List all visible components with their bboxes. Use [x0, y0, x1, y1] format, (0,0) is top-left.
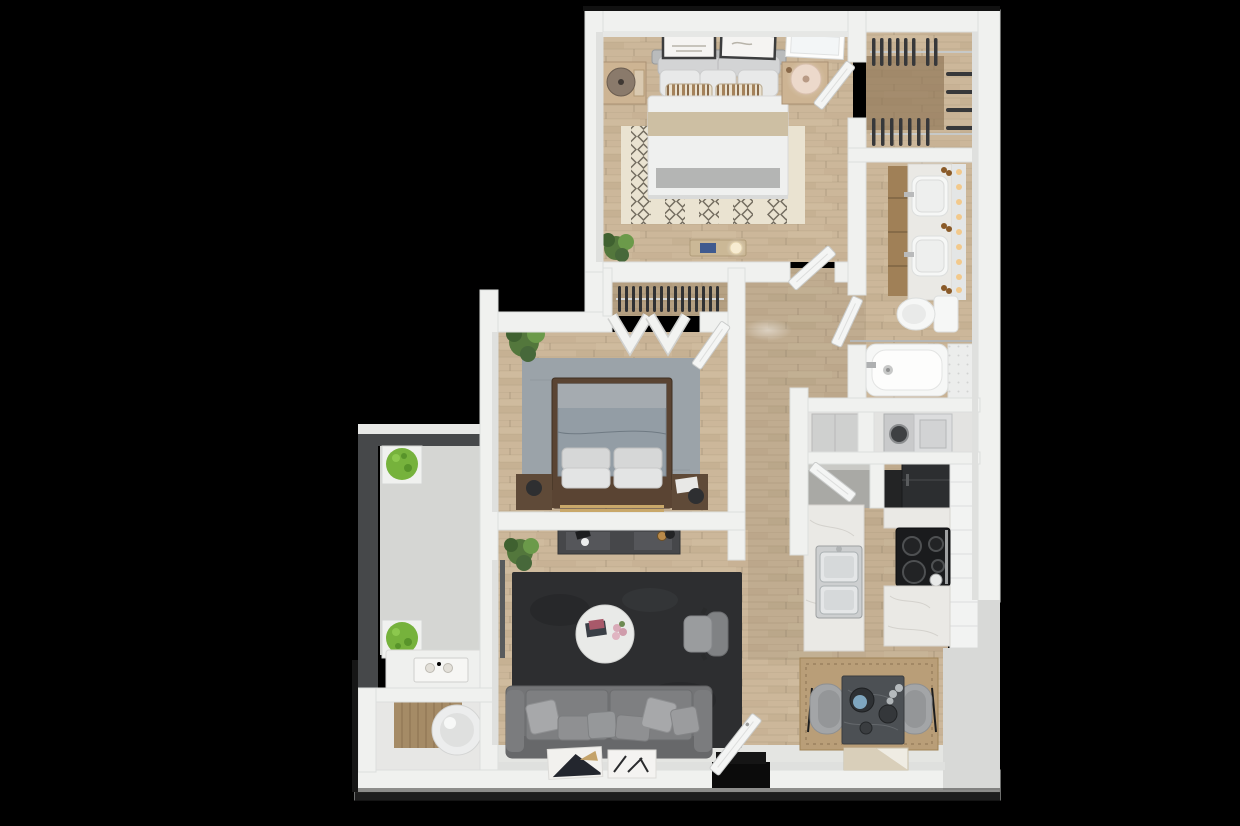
chair-left-seat: [818, 690, 840, 728]
nightstand-left: [600, 62, 646, 104]
hallway: [744, 319, 792, 341]
foot-edge: [648, 195, 788, 199]
refrigerator: [902, 462, 950, 508]
left-edge-shadow: [352, 660, 358, 792]
wall-bedroom2-top-left: [480, 312, 612, 332]
burner-2: [929, 537, 943, 551]
plate-2: [879, 705, 897, 723]
lamp-left-finial: [618, 79, 624, 85]
dryer-door: [920, 420, 946, 448]
bed2-pillow-3: [562, 468, 610, 488]
chair-right-seat: [904, 690, 926, 728]
flower-2: [619, 628, 627, 636]
toilet: [897, 296, 958, 332]
tan-blanket: [648, 112, 788, 136]
kitchen-dark-counter: [884, 470, 902, 508]
throw-pillow-6: [670, 706, 700, 736]
media-console: [558, 528, 680, 554]
two-tone-floor-mat: [844, 748, 908, 770]
sofa-arm-left: [506, 690, 524, 752]
master-bed: [648, 50, 788, 199]
plate-small: [860, 722, 872, 734]
wall-bath-left-lower: [848, 345, 866, 398]
glass-1: [889, 690, 897, 698]
bedroom2-footboard-trim: [560, 509, 664, 512]
bed2-gold-trim: [560, 505, 664, 508]
shade-right-inner: [972, 32, 978, 600]
toilet-seat: [902, 304, 926, 324]
bench-lamp: [730, 242, 742, 254]
floor-plan-svg: [0, 0, 1240, 826]
closet-wood-grain: [866, 56, 944, 130]
vanity-cabinets: [888, 166, 908, 296]
lamp2-left: [526, 480, 542, 496]
armchair-seat: [684, 616, 712, 652]
bed2-pillow-1: [562, 448, 610, 470]
wall-closet-bath: [848, 148, 978, 162]
throw-pillow-2: [558, 716, 592, 740]
lamp2-right: [688, 488, 704, 504]
bed2-pillow-2: [614, 448, 662, 470]
flower-greens: [619, 621, 625, 627]
tub-inner: [872, 350, 942, 390]
wall-right-outer: [978, 10, 1000, 602]
wall-master-bottom-left: [603, 262, 790, 282]
tray: [414, 658, 468, 682]
bedroom2-nightstand-right: [672, 474, 708, 510]
bottom-edge-soft: [355, 788, 1000, 793]
blue-book: [700, 243, 716, 253]
plant-leaves-4: [615, 248, 629, 262]
wall-storage-left: [358, 688, 376, 772]
dining-area: [800, 658, 938, 750]
range-knob: [930, 574, 942, 586]
shade-bedroom2-left: [492, 332, 498, 512]
counter-upper: [884, 508, 950, 528]
plant-leaves-2: [618, 234, 634, 250]
hangers-top-row: [872, 38, 938, 66]
throw-pillow-1: [525, 699, 561, 735]
wall-storage-top: [358, 688, 498, 702]
wall-bedroom2-bottom: [498, 512, 745, 530]
cup-2: [444, 664, 453, 673]
hall-light-glow: [744, 319, 792, 341]
throw-pillow-3: [587, 711, 617, 739]
bedroom2-bed: [552, 378, 672, 508]
window-glass: [791, 35, 840, 55]
shade-living-left: [492, 560, 498, 745]
lamp-right-finial: [803, 76, 810, 83]
wall-hall-right: [790, 388, 808, 555]
balcony-slider-track: [500, 560, 505, 658]
wall-closet2-left: [603, 268, 612, 316]
dining-chair-left: [808, 684, 844, 734]
shrub-1: [386, 448, 418, 480]
shrub-2: [386, 622, 418, 654]
wall-tub-bottom: [790, 398, 980, 412]
oven-handle: [945, 530, 948, 584]
cup-1: [426, 664, 435, 673]
sink-faucet: [836, 546, 842, 552]
water-heater-highlight: [444, 717, 456, 729]
railing-top: [358, 434, 494, 446]
bottom-edge-shadow: [355, 792, 1000, 801]
railing-left: [358, 434, 378, 692]
toilet-tank: [934, 296, 958, 332]
bed2-pillow-4: [614, 468, 662, 488]
dining-table: [842, 676, 904, 744]
glass-3: [887, 698, 894, 705]
coffee-table: [576, 605, 634, 663]
dryer: [914, 414, 952, 454]
leaning-frame: [634, 70, 644, 96]
blue-bowl: [853, 695, 867, 709]
console-dish: [581, 538, 589, 546]
wall-closet-divider-upper: [848, 10, 866, 62]
burner-4: [932, 560, 944, 572]
bed2-duvet-fold: [558, 384, 666, 408]
glass-2: [895, 684, 903, 692]
wall-bath-left-upper: [848, 162, 866, 295]
leaning-art-frame-1: [547, 747, 602, 780]
washer: [884, 414, 914, 454]
washer-door: [890, 425, 908, 443]
planter-top: [382, 446, 422, 484]
wall-pantry-divider: [870, 464, 884, 508]
foot-bench: [690, 238, 746, 258]
top-edge-shadow: [583, 6, 1000, 11]
shade-master-left: [596, 32, 603, 262]
double-sink: [816, 546, 862, 618]
burner-1: [903, 537, 921, 555]
rug-mottle-3: [622, 588, 678, 612]
sofa: [506, 686, 712, 758]
leaning-art-frame-2: [608, 750, 656, 778]
faucet-bottom: [904, 252, 914, 257]
bathtub: [850, 341, 978, 398]
burner-3: [903, 561, 925, 583]
cooktop-range: [896, 528, 950, 586]
laundry-closet: [808, 412, 980, 454]
peninsula: [804, 505, 864, 651]
cup: [786, 67, 792, 73]
shade-top-inner: [603, 32, 848, 37]
tub-faucet: [866, 362, 876, 368]
closet2-hangers: [618, 286, 719, 312]
storage-room: [394, 700, 482, 755]
counter-lower: [884, 586, 950, 646]
floor-plan-render: [0, 0, 1240, 826]
wall-top-outer: [585, 10, 1000, 32]
wall-laundry-divider: [858, 412, 874, 452]
faucet-top: [904, 192, 914, 197]
art-frame-2: [721, 34, 776, 59]
fridge-handle: [906, 474, 909, 486]
gray-runner: [656, 168, 780, 188]
flower-3: [612, 632, 620, 640]
wall-laundry-bottom: [790, 452, 980, 464]
water-heater-top: [440, 713, 474, 747]
bedroom2-nightstand-left: [516, 474, 552, 510]
